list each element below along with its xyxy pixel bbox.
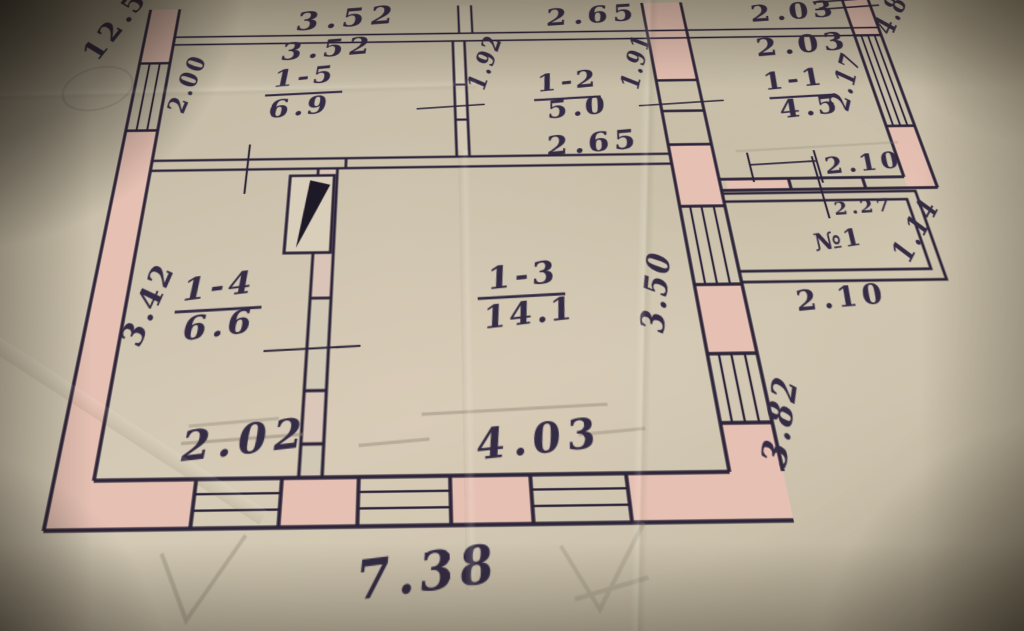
- room-1-5-number: 1-5: [273, 60, 337, 93]
- pencil-check-2: [559, 522, 655, 609]
- floor-plan-photo: 12.5 2.00 3.52 3.52 1-5 6.9 1.92 2.65 1-…: [0, 0, 1024, 631]
- paper-tilt-layer: 12.5 2.00 3.52 3.52 1-5 6.9 1.92 2.65 1-…: [0, 0, 1024, 631]
- dim-2-17: 2.17: [822, 49, 867, 114]
- bottom-wall-windows: [192, 488, 629, 511]
- porch-number: №1: [807, 223, 868, 257]
- room-1-5-area: 6.9: [268, 90, 332, 124]
- dim-2-02: 2.02: [179, 409, 309, 473]
- annex-wall-window: [861, 35, 907, 126]
- dim-3-50: 3.50: [633, 248, 678, 336]
- pencil-circle: [61, 61, 135, 117]
- room-1-3-number: 1-3: [485, 254, 563, 297]
- room-1-2-area: 5.0: [544, 91, 613, 125]
- dim-7-38: 7.38: [354, 533, 503, 613]
- dim-2-65-top: 2.65: [543, 0, 642, 31]
- room-1-4-number: 1-4: [182, 264, 256, 309]
- tick-1-92: [417, 104, 485, 108]
- dim-2-10-annex: 2.10: [819, 147, 908, 180]
- dim-2-27: 2.27: [829, 195, 896, 219]
- paper-perspective-layer: 12.5 2.00 3.52 3.52 1-5 6.9 1.92 2.65 1-…: [0, 59, 1024, 631]
- room-1-4-area: 6.6: [183, 302, 256, 349]
- pencil-dash-2: [359, 439, 430, 445]
- dim-2-10-porch: 2.10: [790, 278, 894, 319]
- dim-4-03: 4.03: [474, 409, 608, 470]
- pencil-check-1: [152, 535, 245, 621]
- dim-3-82: 3.82: [753, 370, 806, 472]
- floor-plan-drawing: 12.5 2.00 3.52 3.52 1-5 6.9 1.92 2.65 1-…: [0, 59, 1024, 631]
- left-wall-window: [136, 63, 159, 130]
- dim-3-52-top: 3.52: [296, 0, 400, 37]
- stove-symbol: [284, 175, 334, 253]
- dim-2-65-inner: 2.65: [542, 124, 644, 163]
- dim-1-91: 1.91: [615, 31, 657, 91]
- tick-1-91: [638, 100, 725, 105]
- dim-2-03-top: 2.03: [745, 0, 842, 27]
